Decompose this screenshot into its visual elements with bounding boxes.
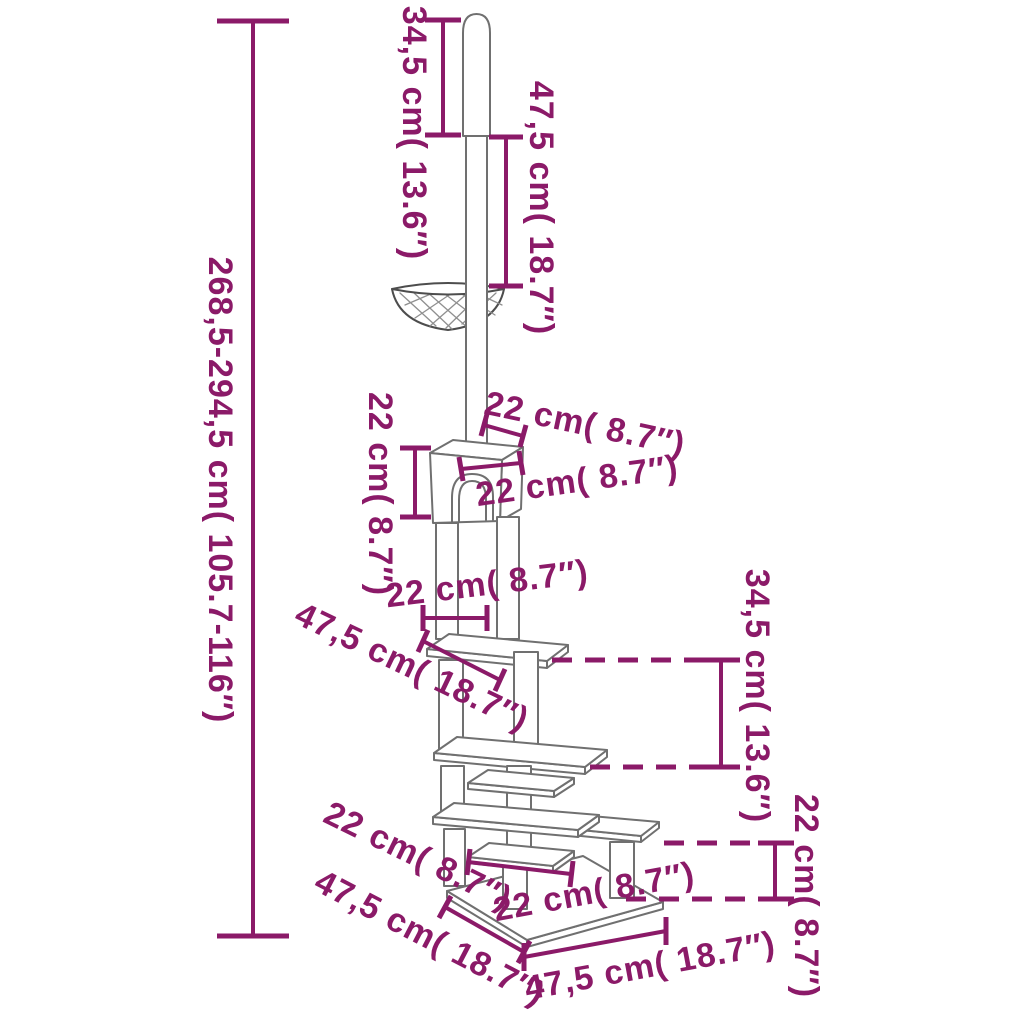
step-platform-upper [468, 770, 574, 797]
ceiling-pole [463, 14, 490, 452]
dim-label-lower-section-height: 22 cm( 8.7″) [789, 794, 823, 998]
dim-label-house-height: 22 cm( 8.7″) [363, 392, 397, 596]
dimension-diagram: 34,5 cm( 13.6″) 47,5 cm( 18.7″) 268,5-29… [0, 0, 1024, 1024]
dim-label-mid-section-height: 34,5 cm( 13.6″) [740, 569, 774, 823]
dim-label-pole-top-segment: 34,5 cm( 13.6″) [397, 6, 431, 260]
dim-label-overall-height: 268,5-294,5 cm( 105.7-116″) [203, 257, 237, 724]
cat-tree-line-art [0, 0, 1024, 1024]
dim-label-pole-upper-section: 47,5 cm( 18.7″) [524, 81, 558, 335]
